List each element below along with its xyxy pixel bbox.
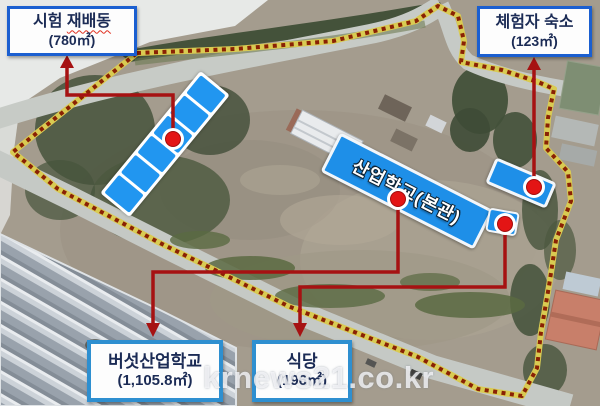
callout-title: 식당 <box>286 351 317 372</box>
annotated-satellite-map: 산업학교(본관) <box>0 0 600 406</box>
cafeteria-building-highlight <box>485 207 520 236</box>
callout-area: (780㎡) <box>49 32 96 50</box>
callout-area: (1,105.8㎡) <box>117 372 192 391</box>
callout-mushroom-school: 버섯산업학교 (1,105.8㎡) <box>87 340 223 402</box>
callout-test-cultivation: 시험 재배동 (780㎡) <box>7 6 137 56</box>
callout-area: (123㎡) <box>511 33 558 51</box>
callout-title: 버섯산업학교 <box>108 351 202 372</box>
callout-title: 체험자 숙소 <box>495 13 573 33</box>
red-roof-building <box>545 290 600 350</box>
callout-title: 시험 재배동 <box>33 12 111 32</box>
callout-cafeteria: 식당 (196㎡) <box>252 340 352 402</box>
callout-lodging: 체험자 숙소 (123㎡) <box>477 6 592 57</box>
callout-area: (196㎡) <box>277 372 327 391</box>
